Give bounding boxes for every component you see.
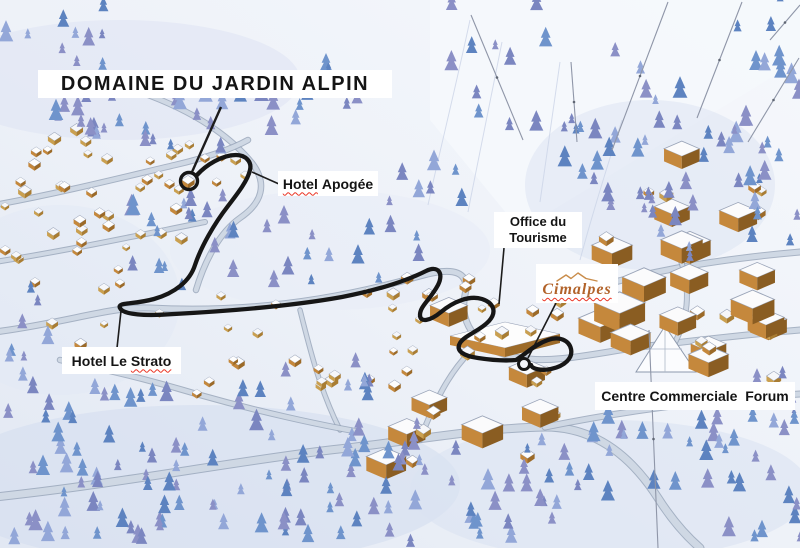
label-strato-words: Hotel Le	[72, 353, 127, 369]
tree-icon	[777, 0, 784, 1]
ski-lift-pylon	[496, 76, 499, 79]
ski-lift-pylon	[772, 99, 775, 102]
ski-lift-pylon	[573, 101, 576, 104]
label-hotel-le-strato: Hotel Le Strato	[62, 347, 181, 374]
label-hotel-apogee: Hotel Apogée	[278, 171, 378, 196]
resort-map-canvas: DOMAINE DU JARDIN ALPIN Hotel Apogée Off…	[0, 0, 800, 548]
ski-lift-pylon	[639, 75, 642, 78]
label-hotel-apogee-word2: Apogée	[322, 176, 373, 192]
label-office-line1: Office du	[510, 214, 566, 230]
label-office-line2: Tourisme	[509, 230, 567, 246]
map-title-text: DOMAINE DU JARDIN ALPIN	[61, 73, 369, 96]
ski-lift-pylon	[652, 438, 655, 441]
ski-lift-pylon	[718, 59, 721, 62]
label-centre-commerciale-forum: Centre Commerciale Forum	[595, 382, 795, 410]
ski-lift-pylon	[784, 21, 787, 24]
label-strato-word-flagged: Strato	[131, 353, 171, 369]
route-end-ring	[519, 359, 530, 370]
map-title: DOMAINE DU JARDIN ALPIN	[38, 70, 392, 98]
label-cimalpes-logo: Cimalpes	[536, 264, 618, 303]
label-forum-text: Centre Commerciale Forum	[601, 388, 789, 404]
label-office-tourisme: Office du Tourisme	[494, 212, 582, 248]
label-hotel-apogee-word1: Hotel	[283, 176, 318, 192]
label-cimalpes-text: Cimalpes	[542, 282, 611, 297]
